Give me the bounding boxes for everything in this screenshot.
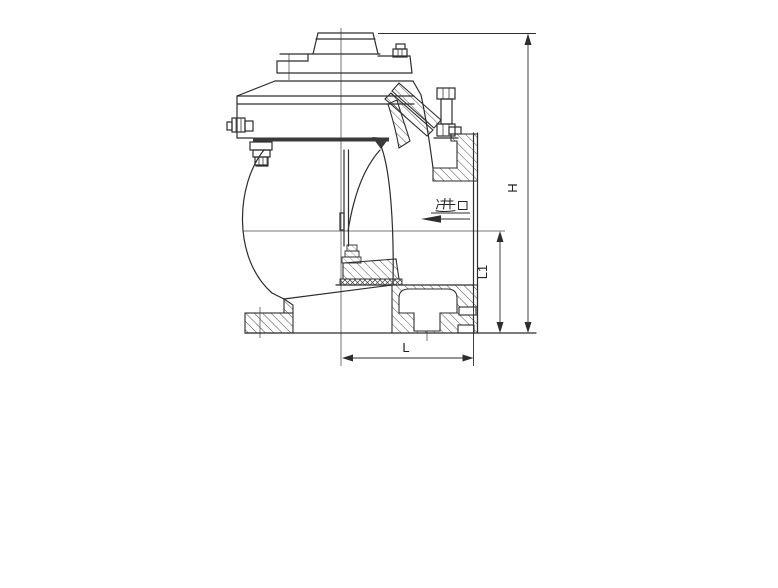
seal-mesh-band <box>340 279 402 285</box>
bonnet-left-shoulder <box>237 81 275 96</box>
left-bolt <box>227 118 253 132</box>
inlet-annotation: 进口 <box>421 198 470 223</box>
top-bolt <box>393 44 407 57</box>
bowl-bottom-skirt <box>284 285 392 299</box>
disc-wedge <box>343 259 399 279</box>
bowl-left-outline <box>242 150 284 299</box>
right-clamp-bolt <box>434 88 458 138</box>
top-cap <box>280 33 380 54</box>
dim-label-H: H <box>505 183 520 192</box>
base-flange-left <box>245 299 293 333</box>
diaphragm-band <box>253 137 389 149</box>
bonnet-flange-step <box>277 54 308 73</box>
dimension-L1: L1 <box>475 231 504 333</box>
flange-gap <box>458 325 474 333</box>
dim-label-L1: L1 <box>475 265 490 279</box>
inlet-upper-wall-section <box>433 134 478 181</box>
inlet-flow-arrow <box>421 215 441 223</box>
valve-technical-drawing: H L1 L 进口 <box>0 0 778 588</box>
screenshot-canvas: H L1 L 进口 <box>0 0 778 588</box>
outlet-column <box>392 285 478 333</box>
bonnet-right-shoulder <box>413 81 421 95</box>
bowl-inner-curve-left <box>348 150 380 231</box>
dim-label-L: L <box>402 340 409 355</box>
diaphragm-edge <box>372 137 389 149</box>
